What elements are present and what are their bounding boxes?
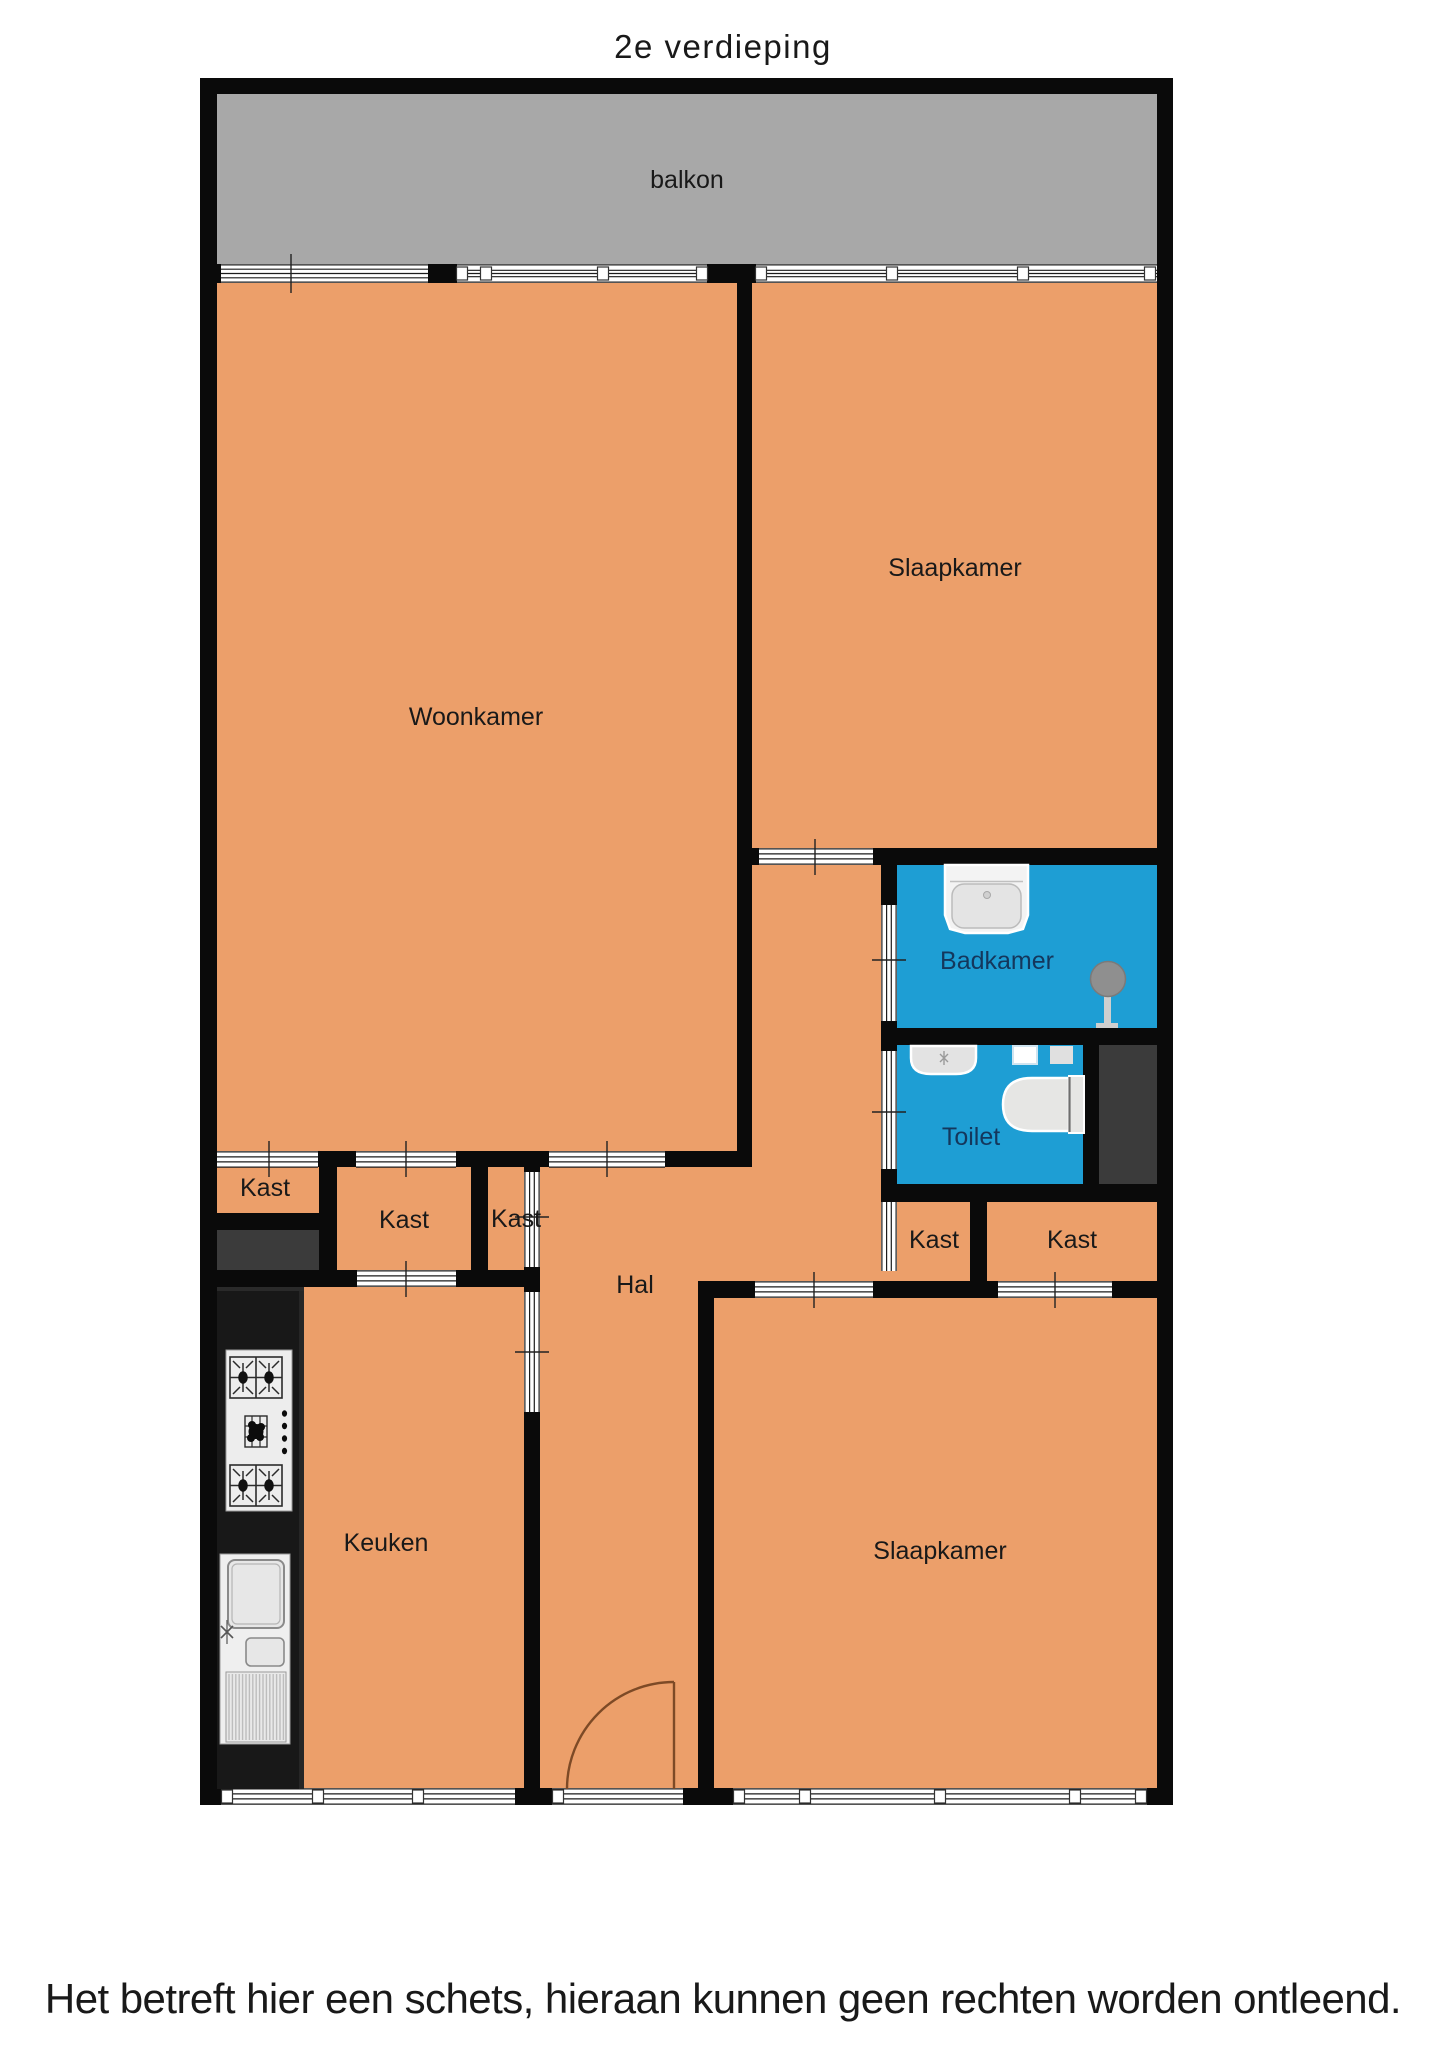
svg-text:Kast: Kast bbox=[240, 1174, 290, 1202]
svg-text:Kast: Kast bbox=[909, 1226, 959, 1254]
svg-text:Kast: Kast bbox=[1047, 1226, 1097, 1254]
svg-text:Hal: Hal bbox=[616, 1271, 654, 1299]
svg-text:Slaapkamer: Slaapkamer bbox=[873, 1537, 1006, 1565]
svg-text:Keuken: Keuken bbox=[344, 1529, 429, 1557]
svg-text:Kast: Kast bbox=[491, 1205, 541, 1233]
svg-text:Badkamer: Badkamer bbox=[940, 947, 1054, 975]
svg-text:balkon: balkon bbox=[650, 166, 724, 194]
svg-text:Kast: Kast bbox=[379, 1206, 429, 1234]
svg-text:Toilet: Toilet bbox=[942, 1123, 1000, 1151]
svg-text:Het betreft hier een schets, h: Het betreft hier een schets, hieraan kun… bbox=[45, 1975, 1401, 2022]
svg-text:Slaapkamer: Slaapkamer bbox=[888, 554, 1021, 582]
svg-text:2e verdieping: 2e verdieping bbox=[614, 28, 832, 65]
svg-text:Woonkamer: Woonkamer bbox=[409, 703, 543, 731]
